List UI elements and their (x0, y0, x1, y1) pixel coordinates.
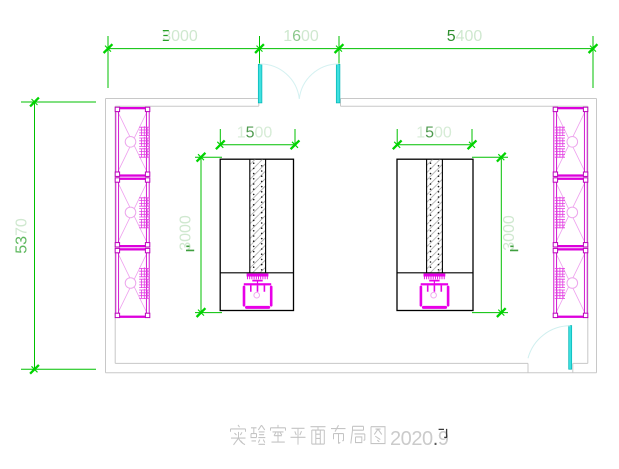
svg-text:3000: 3000 (178, 215, 195, 251)
svg-text:1500: 1500 (237, 125, 273, 142)
svg-text:1500: 1500 (416, 125, 452, 142)
svg-text:5400: 5400 (447, 28, 483, 45)
svg-text:1600: 1600 (283, 28, 319, 45)
svg-text:3000: 3000 (501, 215, 518, 251)
svg-text:2020.9: 2020.9 (390, 428, 449, 450)
svg-text:5370: 5370 (14, 218, 31, 254)
